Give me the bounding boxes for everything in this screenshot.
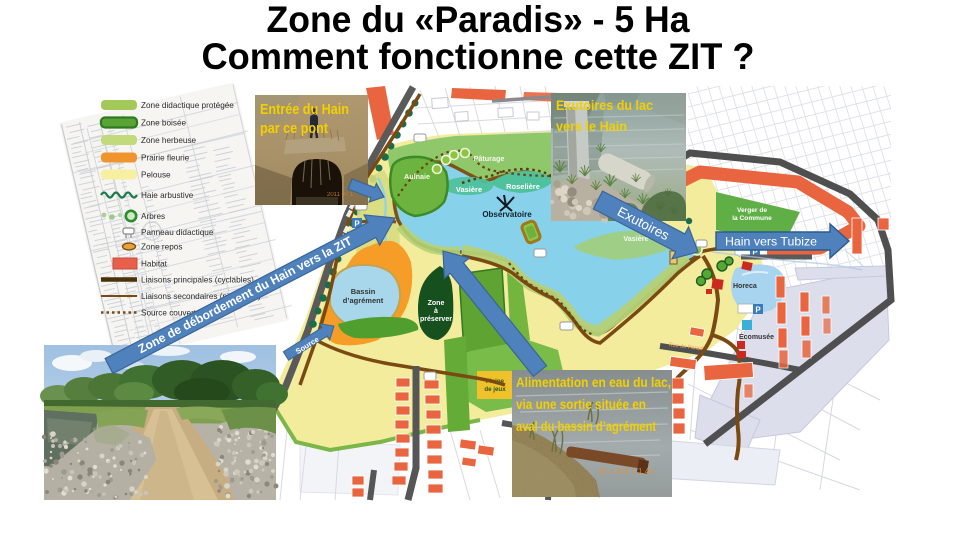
svg-text:2011 07 1: 2011 07 1 bbox=[327, 192, 354, 198]
svg-text:Comment fonctionne cette ZIT ?: Comment fonctionne cette ZIT ? bbox=[202, 36, 755, 77]
svg-text:de jeux: de jeux bbox=[484, 386, 506, 393]
svg-text:Écomusée: Écomusée bbox=[739, 332, 774, 341]
svg-text:Pâturage: Pâturage bbox=[474, 154, 505, 163]
svg-text:Alimentation en eau du lac,: Alimentation en eau du lac, bbox=[516, 374, 671, 390]
svg-text:Prairie fleurie: Prairie fleurie bbox=[141, 154, 190, 163]
svg-text:Observatoire: Observatoire bbox=[482, 210, 532, 219]
svg-text:Verger de: Verger de bbox=[737, 207, 767, 214]
svg-text:Pelouse: Pelouse bbox=[141, 171, 171, 180]
svg-text:Haie arbustive: Haie arbustive bbox=[141, 191, 194, 200]
svg-text:d’agrément: d’agrément bbox=[343, 296, 384, 305]
svg-text:préserver: préserver bbox=[420, 316, 452, 323]
svg-text:Bassin: Bassin bbox=[351, 287, 376, 296]
svg-text:Panneau didactique: Panneau didactique bbox=[141, 228, 214, 237]
svg-text:Zone herbeuse: Zone herbeuse bbox=[141, 136, 197, 145]
svg-text:aval du bassin d’agrément: aval du bassin d’agrément bbox=[516, 418, 656, 434]
svg-text:via une sortie située en: via une sortie située en bbox=[516, 396, 646, 412]
svg-text:Aulnaie: Aulnaie bbox=[404, 172, 430, 181]
svg-text:à: à bbox=[434, 308, 438, 315]
svg-text:par ce pont: par ce pont bbox=[260, 121, 328, 137]
svg-text:Zone du «Paradis» - 5 Ha: Zone du «Paradis» - 5 Ha bbox=[267, 0, 690, 40]
svg-text:Zone repos: Zone repos bbox=[141, 243, 182, 252]
svg-text:Horeca: Horeca bbox=[733, 283, 757, 290]
svg-text:Zone: Zone bbox=[428, 300, 445, 307]
svg-text:la Commune: la Commune bbox=[732, 215, 772, 222]
svg-text:P: P bbox=[755, 306, 761, 315]
svg-text:vers le Hain: vers le Hain bbox=[556, 118, 627, 134]
svg-text:20 1 201 1 1 41: 20 1 201 1 1 41 bbox=[598, 467, 654, 476]
svg-text:Exutoires du lac: Exutoires du lac bbox=[556, 97, 653, 113]
svg-text:Entrée du Hain: Entrée du Hain bbox=[260, 102, 349, 118]
svg-text:Zone didactique protégée: Zone didactique protégée bbox=[141, 101, 234, 110]
svg-text:Roselière: Roselière bbox=[506, 182, 540, 191]
svg-text:Arbres: Arbres bbox=[141, 212, 165, 221]
svg-text:Zone boisée: Zone boisée bbox=[141, 119, 187, 128]
svg-text:Hain vers Tubize: Hain vers Tubize bbox=[725, 235, 817, 249]
svg-text:Habitat: Habitat bbox=[141, 260, 168, 269]
svg-text:Vasière: Vasière bbox=[456, 185, 482, 194]
svg-text:Liaisons principales (cyclable: Liaisons principales (cyclables) bbox=[141, 276, 254, 285]
